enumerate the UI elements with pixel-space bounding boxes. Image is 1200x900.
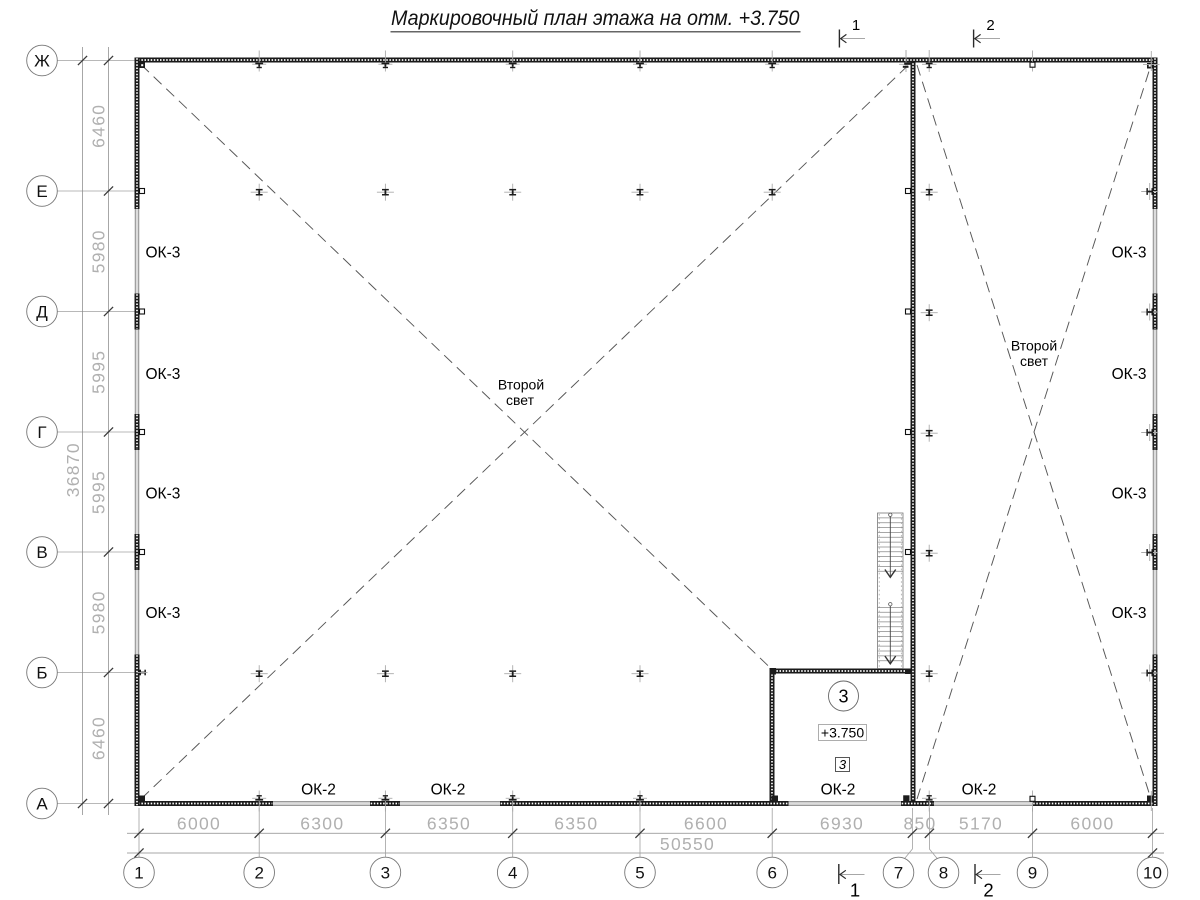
svg-text:3: 3	[839, 757, 847, 772]
svg-text:ОК-3: ОК-3	[146, 366, 181, 383]
svg-text:8: 8	[939, 863, 948, 882]
svg-text:Второй: Второй	[498, 377, 544, 393]
svg-text:ОК-3: ОК-3	[1112, 486, 1147, 503]
svg-text:Д: Д	[36, 302, 48, 321]
svg-text:ОК-3: ОК-3	[1112, 366, 1147, 383]
svg-text:ОК-2: ОК-2	[431, 782, 466, 799]
svg-text:5170: 5170	[959, 814, 1003, 834]
svg-text:2: 2	[254, 863, 263, 882]
svg-text:6350: 6350	[427, 814, 471, 834]
svg-text:ОК-2: ОК-2	[301, 782, 336, 799]
svg-text:5995: 5995	[89, 470, 109, 514]
svg-text:6460: 6460	[89, 104, 109, 148]
svg-text:850: 850	[903, 814, 936, 834]
svg-text:Ж: Ж	[34, 51, 50, 70]
svg-text:4: 4	[508, 863, 517, 882]
svg-text:1: 1	[852, 17, 860, 34]
svg-text:ОК-3: ОК-3	[1112, 245, 1147, 262]
svg-text:+3.750: +3.750	[821, 725, 864, 741]
svg-text:5980: 5980	[89, 229, 109, 273]
svg-text:3: 3	[838, 686, 848, 706]
svg-text:Е: Е	[36, 182, 47, 201]
svg-text:7: 7	[894, 863, 903, 882]
svg-text:6300: 6300	[300, 814, 344, 834]
svg-text:свет: свет	[1020, 353, 1049, 369]
svg-text:9: 9	[1028, 863, 1037, 882]
svg-text:2: 2	[983, 879, 993, 900]
svg-text:ОК-2: ОК-2	[962, 782, 997, 799]
svg-text:ОК-2: ОК-2	[821, 782, 856, 799]
svg-text:6930: 6930	[820, 814, 864, 834]
svg-text:1: 1	[134, 863, 143, 882]
svg-text:Второй: Второй	[1011, 338, 1057, 354]
svg-text:6000: 6000	[177, 814, 221, 834]
svg-text:10: 10	[1143, 863, 1162, 882]
svg-text:Б: Б	[36, 663, 47, 682]
svg-text:свет: свет	[506, 392, 535, 408]
svg-text:ОК-3: ОК-3	[146, 245, 181, 262]
svg-text:2: 2	[986, 17, 994, 34]
svg-text:Г: Г	[37, 423, 46, 442]
svg-text:6460: 6460	[89, 716, 109, 760]
svg-text:ОК-3: ОК-3	[146, 486, 181, 503]
svg-text:В: В	[36, 543, 47, 562]
svg-text:А: А	[36, 794, 48, 813]
svg-text:ОК-3: ОК-3	[146, 605, 181, 622]
svg-text:6350: 6350	[554, 814, 598, 834]
svg-text:5980: 5980	[89, 590, 109, 634]
svg-text:1: 1	[850, 879, 860, 900]
svg-text:50550: 50550	[660, 834, 715, 854]
svg-text:6000: 6000	[1070, 814, 1114, 834]
svg-text:5995: 5995	[89, 350, 109, 394]
svg-text:6: 6	[767, 863, 776, 882]
svg-text:5: 5	[635, 863, 644, 882]
svg-text:3: 3	[381, 863, 390, 882]
svg-text:Маркировочный план этажа на от: Маркировочный план этажа на отм. +3.750	[391, 7, 800, 30]
svg-text:6600: 6600	[684, 814, 728, 834]
svg-text:ОК-3: ОК-3	[1112, 605, 1147, 622]
svg-text:36870: 36870	[63, 442, 83, 497]
